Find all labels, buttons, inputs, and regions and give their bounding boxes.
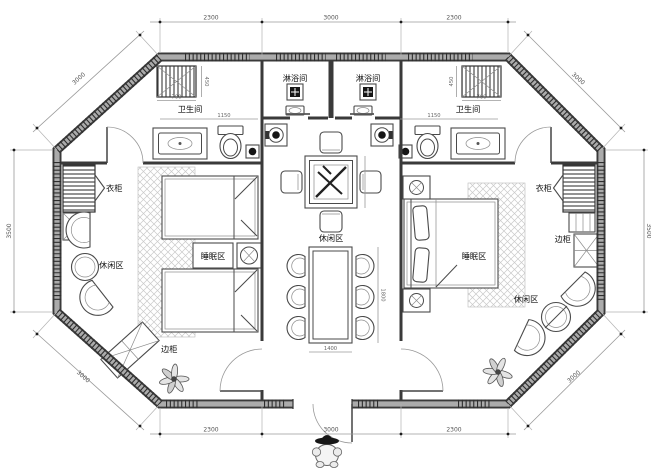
dim-top-center: 3000 xyxy=(323,15,338,22)
plant-icon-right xyxy=(483,357,513,387)
room-label-side-cabinet-left: 边柜 xyxy=(161,344,177,354)
washbasin-icon-left xyxy=(265,124,287,146)
dimension-bottom: 2300 3000 2300 xyxy=(150,404,516,438)
tea-chair-right xyxy=(360,171,381,193)
dim-dining-length: 1800 xyxy=(380,288,386,301)
dim-bottom-right: 2300 xyxy=(446,427,461,434)
floor-plan-page: 2300 3000 2300 2300 3000 2300 3500 3500 … xyxy=(0,0,651,473)
lounge-chair-left-2 xyxy=(73,280,114,323)
double-bed-right xyxy=(404,199,498,288)
door-right-room xyxy=(401,349,443,391)
floor-drain-left xyxy=(246,145,259,158)
room-label-sleep-left: 睡眠区 xyxy=(201,251,226,261)
nightstand-right-bottom xyxy=(403,289,430,312)
tea-chair-top xyxy=(320,132,342,153)
dim-bottom-center: 3000 xyxy=(323,427,338,434)
room-label-lounge-center: 休闲区 xyxy=(319,233,344,243)
cabinet-under-wardrobe-right xyxy=(569,213,595,232)
round-table-left xyxy=(72,254,99,281)
dim-diag-bottom-right: 3000 xyxy=(566,369,582,385)
single-bed-bottom-left xyxy=(162,269,258,332)
room-label-wardrobe-right: 衣柜 xyxy=(536,183,552,193)
dimension-diag-top-left: 3000 xyxy=(33,31,160,150)
stool-left xyxy=(237,243,261,268)
dim-bath-right-width: 1150 xyxy=(427,113,440,119)
toilet-icon-left xyxy=(218,126,243,159)
statue-figure xyxy=(312,435,341,468)
vanity-right xyxy=(451,128,505,159)
dining-chair-right-3 xyxy=(356,317,374,340)
room-label-bathroom-left: 卫生间 xyxy=(178,104,203,114)
dining-chair-left-2 xyxy=(287,286,305,309)
toilet-icon-right xyxy=(415,126,440,159)
shower-drain-left xyxy=(287,84,303,100)
dim-shelf-depth-right: 450 xyxy=(449,77,455,87)
shower-divider-wall xyxy=(329,61,334,118)
plant-icon-left xyxy=(159,364,189,394)
door-bathroom-right xyxy=(515,127,551,163)
shelf-right xyxy=(462,66,501,97)
dining-chair-left-1 xyxy=(287,255,305,278)
tea-chair-left xyxy=(281,171,302,193)
dim-top-right: 2300 xyxy=(446,15,461,22)
room-label-shower-left: 淋浴间 xyxy=(283,73,308,83)
dining-chair-left-3 xyxy=(287,317,305,340)
wardrobe-right xyxy=(554,165,596,212)
room-label-bathroom-right: 卫生间 xyxy=(456,104,481,114)
room-label-sleep-right: 睡眠区 xyxy=(462,251,487,261)
washbasin-icon-right xyxy=(371,124,393,146)
dimension-top: 2300 3000 2300 xyxy=(150,15,516,58)
room-label-wardrobe-left: 衣柜 xyxy=(106,183,122,193)
dining-chair-right-1 xyxy=(356,255,374,278)
dimension-right: 3500 xyxy=(606,149,651,314)
vanity-left xyxy=(153,128,207,159)
dim-bottom-left: 2300 xyxy=(203,427,218,434)
wardrobe-left xyxy=(63,165,105,212)
floor-plan-svg: 2300 3000 2300 2300 3000 2300 3500 3500 … xyxy=(0,0,651,473)
single-bed-top-left xyxy=(162,176,258,239)
tea-table xyxy=(305,156,357,208)
nightstand-right-top xyxy=(403,176,430,199)
dim-side-left: 3500 xyxy=(6,223,13,238)
door-left-room xyxy=(220,349,262,391)
dim-shelf-right: 700 xyxy=(477,95,487,101)
dining-chair-right-2 xyxy=(356,286,374,309)
dining-table xyxy=(309,247,352,343)
entrance-jambs xyxy=(293,399,352,409)
dim-diag-top-left: 3000 xyxy=(71,71,87,87)
dim-top-left: 2300 xyxy=(203,15,218,22)
dim-bath-left-width: 1150 xyxy=(217,113,230,119)
dim-dining-width: 1400 xyxy=(324,346,337,352)
door-bathroom-left xyxy=(107,127,143,163)
dimension-diag-top-right: 3000 xyxy=(508,31,625,150)
room-label-lounge-left: 休闲区 xyxy=(99,260,124,270)
dimension-left: 3500 xyxy=(6,149,52,314)
shower-drain-right xyxy=(360,84,376,100)
dim-shelf-left: 700 xyxy=(172,95,182,101)
shelf-left xyxy=(157,66,196,97)
door-entrance xyxy=(313,404,352,443)
room-label-side-cabinet-right: 边柜 xyxy=(555,234,571,244)
round-chair-right xyxy=(542,303,571,332)
dim-side-right: 3500 xyxy=(645,223,651,238)
dim-shelf-depth-left: 450 xyxy=(203,77,209,87)
dim-diag-bottom-left: 3000 xyxy=(75,369,91,385)
room-label-shower-right: 淋浴间 xyxy=(356,73,381,83)
side-cabinet-left xyxy=(101,322,159,378)
room-label-lounge-right: 休闲区 xyxy=(514,294,539,304)
side-cabinet-right xyxy=(574,234,599,267)
tea-chair-bottom xyxy=(320,211,342,232)
